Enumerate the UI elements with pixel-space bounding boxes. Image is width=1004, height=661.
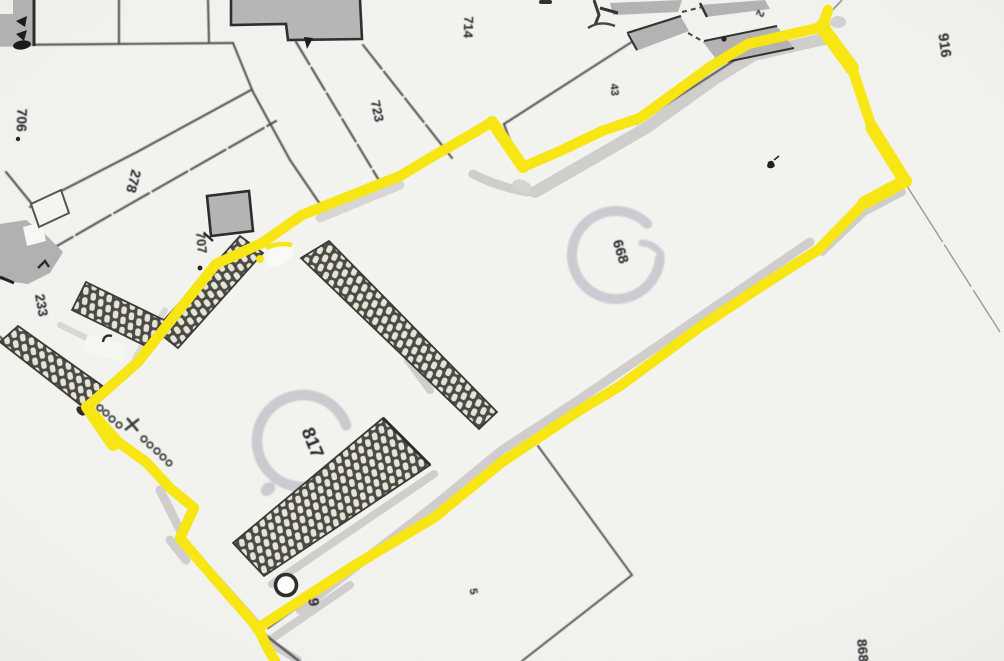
svg-text:868: 868	[854, 638, 872, 661]
svg-text:916: 916	[934, 32, 953, 58]
svg-text:707: 707	[193, 231, 210, 254]
svg-text:706: 706	[14, 108, 31, 132]
svg-text:43: 43	[607, 83, 620, 96]
svg-text:714: 714	[461, 16, 477, 39]
